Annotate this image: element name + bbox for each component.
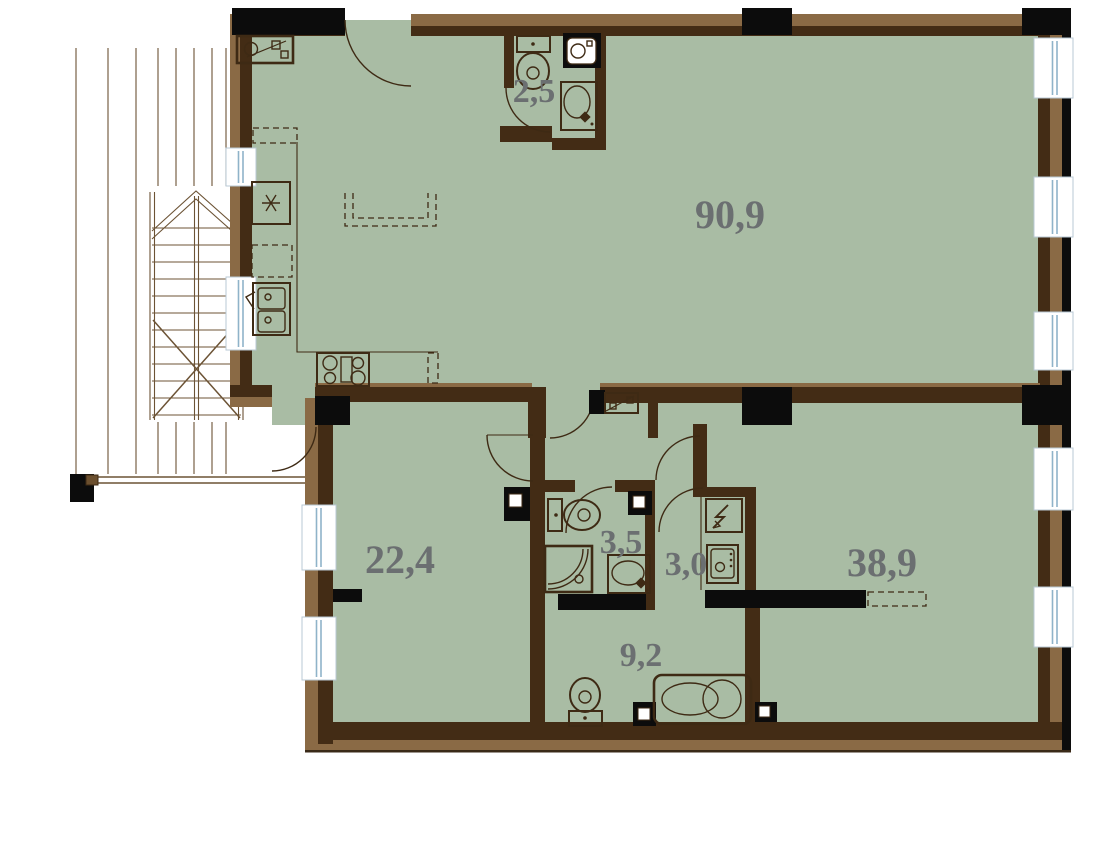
window xyxy=(1034,312,1073,370)
vent-shaft xyxy=(633,702,656,726)
room-area-label-bath-lower: 9,2 xyxy=(620,637,663,674)
room-area-label-living: 90,9 xyxy=(695,192,765,237)
column xyxy=(232,8,345,35)
window xyxy=(1034,38,1073,98)
washing-machine-icon xyxy=(563,33,601,68)
room-area-label-hall: 3,0 xyxy=(665,546,708,583)
window xyxy=(302,617,336,680)
room-area-label-shower: 3,5 xyxy=(600,524,643,561)
vent-shaft xyxy=(755,702,777,722)
column xyxy=(315,396,350,425)
wall-bar xyxy=(705,590,866,608)
window xyxy=(226,277,256,350)
window xyxy=(1034,587,1073,647)
wall-bar xyxy=(558,594,646,610)
column xyxy=(742,8,792,35)
room-area-label-room-right: 38,9 xyxy=(847,540,917,585)
window xyxy=(1034,448,1073,510)
window xyxy=(302,505,336,570)
vent-shaft xyxy=(628,491,652,515)
floor-plan: 90,9 2,5 22,4 3,5 3,0 38,9 9,2 xyxy=(0,0,1120,852)
wall-bar xyxy=(333,589,362,602)
room-area-label-room-left: 22,4 xyxy=(365,537,435,582)
window xyxy=(226,148,256,186)
column xyxy=(742,387,792,425)
floor-plan-svg: 90,9 2,5 22,4 3,5 3,0 38,9 9,2 xyxy=(0,0,1120,852)
column xyxy=(1022,385,1071,425)
window xyxy=(1034,177,1073,237)
upper-unit-floor xyxy=(246,18,1052,402)
room-area-label-bath-upper: 2,5 xyxy=(513,73,556,110)
floor-areas xyxy=(246,18,1052,744)
column xyxy=(1022,8,1071,35)
deck-marker xyxy=(86,475,98,485)
vent-shaft xyxy=(504,487,530,521)
